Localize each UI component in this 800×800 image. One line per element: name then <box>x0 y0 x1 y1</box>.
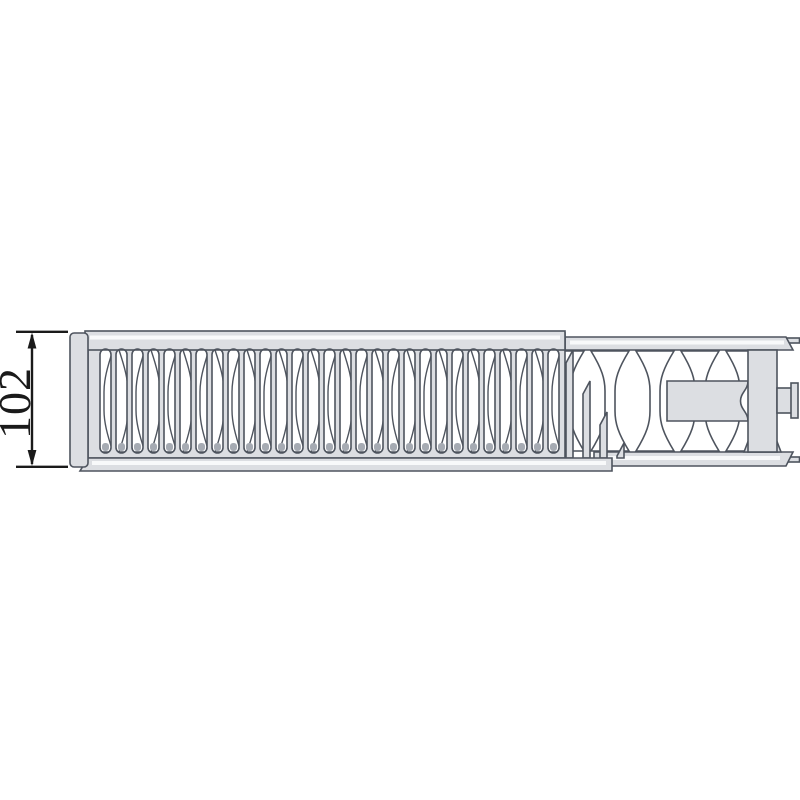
dimension-label: 102 <box>0 367 40 439</box>
dimension-arrow-up-icon <box>28 333 37 349</box>
slot-bottom-shading <box>518 443 525 451</box>
grille-slot <box>436 349 447 453</box>
radiator-diagram <box>70 331 800 471</box>
grille-slot-shadows <box>102 443 557 451</box>
grille-slots <box>100 349 559 453</box>
slot-bottom-shading <box>486 443 493 451</box>
end-plate <box>748 350 777 452</box>
slot-bottom-shading <box>246 443 253 451</box>
slot-bottom-shading <box>422 443 429 451</box>
slot-bottom-shading <box>326 443 333 451</box>
technical-drawing-page: 102 <box>0 0 800 800</box>
grille-slot <box>148 349 159 453</box>
grille-cutaway-strip <box>600 412 607 458</box>
back-panel-bottom-rail-highlight <box>600 456 780 460</box>
slot-bottom-shading <box>406 443 413 451</box>
blanking-plate <box>667 381 748 421</box>
grille-slot <box>484 349 495 453</box>
slot-bottom-shading <box>358 443 365 451</box>
slot-bottom-shading <box>134 443 141 451</box>
front-panel-bottom-rail-highlight <box>92 461 606 465</box>
front-panel <box>80 331 624 471</box>
grille-slot <box>500 349 511 453</box>
slot-bottom-shading <box>534 443 541 451</box>
slot-bottom-shading <box>102 443 109 451</box>
grille-slot <box>372 349 383 453</box>
slot-bottom-shading <box>214 443 221 451</box>
grille-slot <box>196 349 207 453</box>
slot-bottom-shading <box>262 443 269 451</box>
grille-slot <box>404 349 415 453</box>
slot-bottom-shading <box>342 443 349 451</box>
grille-slot <box>212 349 223 453</box>
slot-bottom-shading <box>294 443 301 451</box>
slot-bottom-shading <box>454 443 461 451</box>
grille-slot <box>532 349 543 453</box>
grille-slot <box>132 349 143 453</box>
grille-slot <box>468 349 479 453</box>
slot-bottom-shading <box>390 443 397 451</box>
slot-bottom-shading <box>166 443 173 451</box>
dimension-arrow-down-icon <box>28 450 37 466</box>
back-panel-top-rail-highlight <box>570 341 784 345</box>
grille-slot <box>420 349 431 453</box>
grille-slot <box>516 349 527 453</box>
grille-slot <box>180 349 191 453</box>
front-panel-top-rail-highlight <box>90 336 560 340</box>
grille-slot <box>388 349 399 453</box>
slot-bottom-shading <box>150 443 157 451</box>
grille-slot <box>340 349 351 453</box>
slot-bottom-shading <box>550 443 557 451</box>
left-end-cap <box>70 333 88 467</box>
grille-cutaway-strip <box>566 350 573 458</box>
grille-slot <box>452 349 463 453</box>
connection-stub <box>777 388 792 413</box>
slot-bottom-shading <box>278 443 285 451</box>
convector-fin-exposed <box>591 351 629 451</box>
grille-slot <box>100 349 111 453</box>
slot-bottom-shading <box>438 443 445 451</box>
slot-bottom-shading <box>502 443 509 451</box>
grille-cutaway-strip <box>583 381 590 458</box>
grille-slot <box>292 349 303 453</box>
front-panel-top-rail <box>85 331 565 350</box>
grille-slot <box>308 349 319 453</box>
grille-slot <box>116 349 127 453</box>
grille-slot <box>324 349 335 453</box>
grille-slot <box>228 349 239 453</box>
slot-bottom-shading <box>198 443 205 451</box>
grille-slot <box>244 349 255 453</box>
radiator-cross-section-drawing: 102 <box>0 0 800 800</box>
slot-bottom-shading <box>310 443 317 451</box>
slot-bottom-shading <box>230 443 237 451</box>
slot-bottom-shading <box>470 443 477 451</box>
grille-slot <box>260 349 271 453</box>
grille-slot <box>164 349 175 453</box>
connection-flange <box>791 383 798 418</box>
grille-slot <box>356 349 367 453</box>
grille-slot <box>276 349 287 453</box>
grille-slot <box>548 349 559 453</box>
slot-bottom-shading <box>182 443 189 451</box>
slot-bottom-shading <box>374 443 381 451</box>
slot-bottom-shading <box>118 443 125 451</box>
dimension-annotation: 102 <box>0 332 68 467</box>
